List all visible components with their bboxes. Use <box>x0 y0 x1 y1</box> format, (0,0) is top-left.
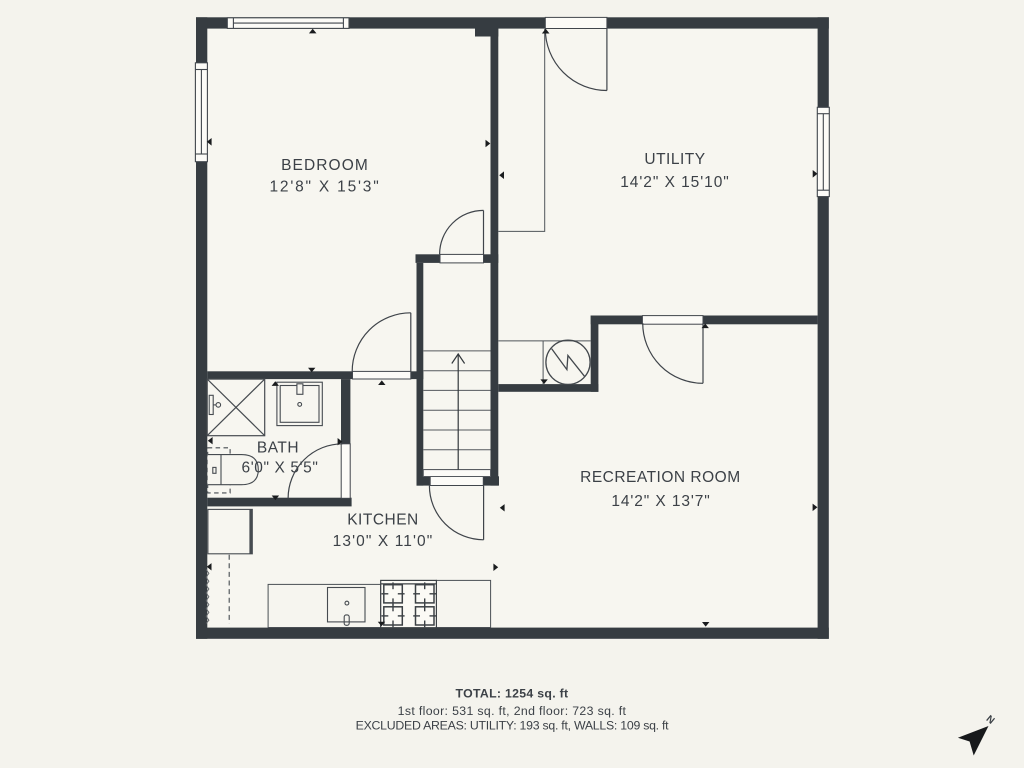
svg-text:BATH: BATH <box>257 439 299 456</box>
svg-text:6'0" X 5'5": 6'0" X 5'5" <box>242 459 319 476</box>
svg-text:14'2" X 15'10": 14'2" X 15'10" <box>620 174 730 191</box>
svg-text:1st floor: 531 sq. ft, 2nd flo: 1st floor: 531 sq. ft, 2nd floor: 723 sq… <box>398 704 627 718</box>
svg-text:TOTAL: 1254 sq. ft: TOTAL: 1254 sq. ft <box>456 687 569 701</box>
svg-text:UTILITY: UTILITY <box>644 151 705 168</box>
svg-text:BEDROOM: BEDROOM <box>281 157 369 174</box>
svg-text:13'0" X 11'0": 13'0" X 11'0" <box>333 533 434 550</box>
svg-text:KITCHEN: KITCHEN <box>347 511 419 528</box>
svg-text:14'2" X 13'7": 14'2" X 13'7" <box>611 493 710 510</box>
svg-text:RECREATION ROOM: RECREATION ROOM <box>580 469 741 486</box>
svg-text:12'8" X 15'3": 12'8" X 15'3" <box>270 179 381 196</box>
svg-text:EXCLUDED AREAS: UTILITY: 193 s: EXCLUDED AREAS: UTILITY: 193 sq. ft, WAL… <box>356 718 670 732</box>
